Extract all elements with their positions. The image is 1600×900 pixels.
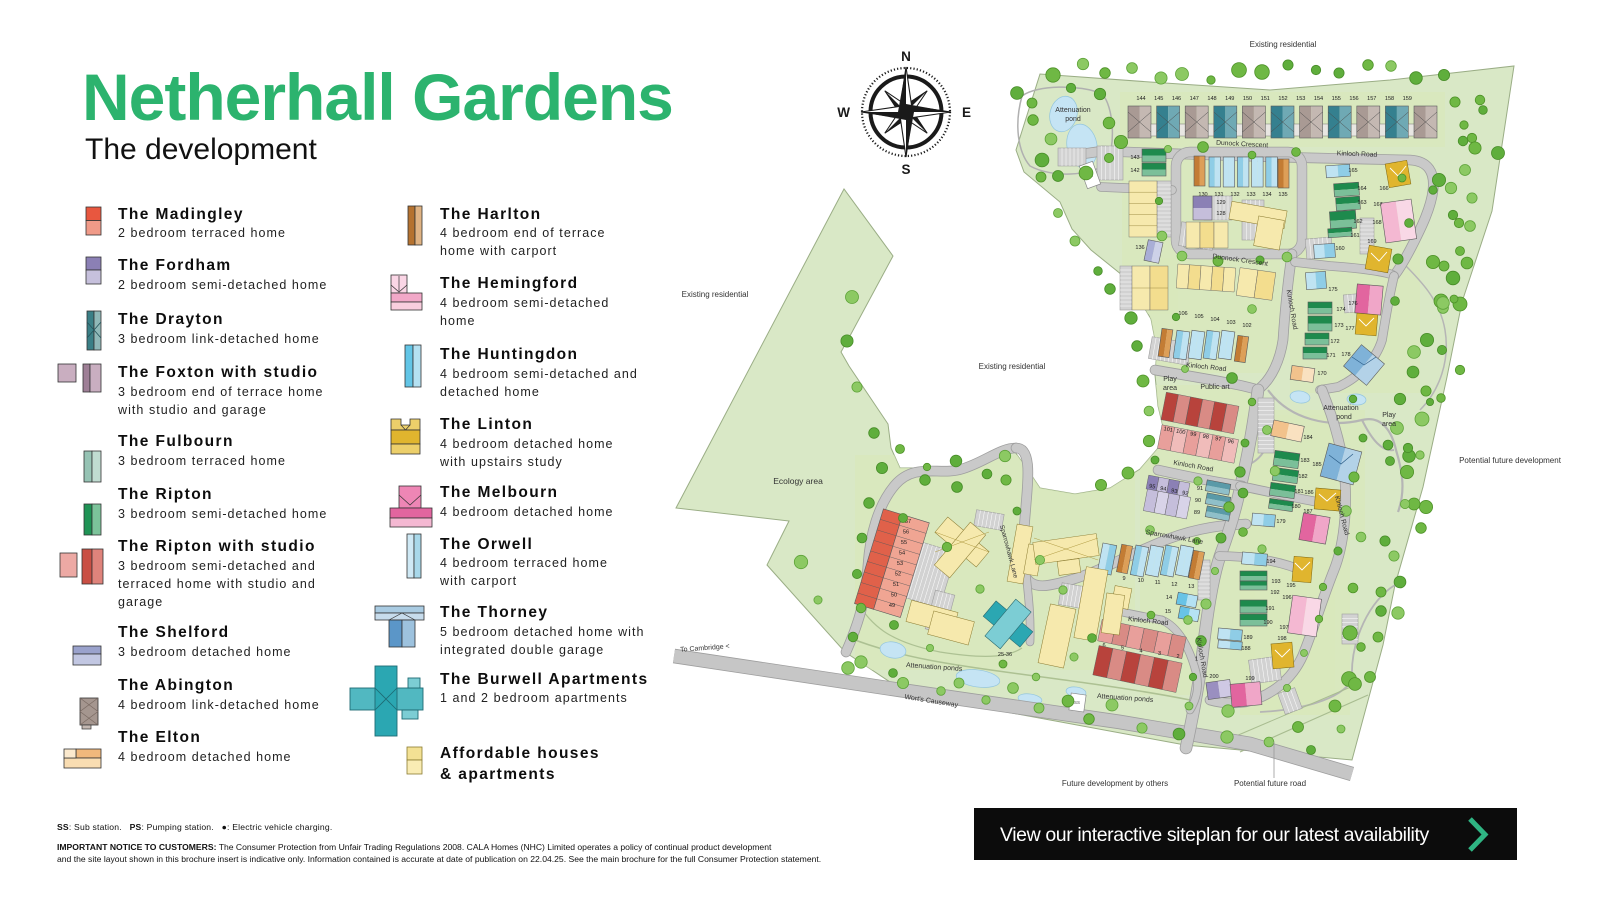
svg-text:152: 152 [1278,96,1287,102]
svg-text:92: 92 [1182,490,1189,497]
svg-text:188: 188 [1241,646,1250,652]
svg-text:131: 131 [1214,192,1223,198]
svg-text:192: 192 [1270,590,1279,596]
svg-text:3: 3 [1158,651,1161,657]
svg-text:175: 175 [1328,287,1337,293]
svg-text:169: 169 [1367,239,1376,245]
svg-text:196: 196 [1282,595,1291,601]
svg-text:143: 143 [1130,155,1139,161]
svg-text:area: area [1382,421,1396,428]
svg-text:182: 182 [1298,474,1307,480]
svg-text:184: 184 [1303,435,1312,441]
svg-text:171: 171 [1326,353,1335,359]
svg-text:176: 176 [1348,301,1357,307]
svg-text:199: 199 [1245,676,1254,682]
svg-text:pond: pond [1336,414,1352,421]
svg-text:150: 150 [1243,96,1252,102]
svg-text:136: 136 [1135,245,1144,251]
svg-text:area: area [1163,385,1177,392]
svg-text:180: 180 [1291,504,1300,510]
svg-text:50: 50 [891,593,897,599]
svg-text:96: 96 [1227,438,1234,445]
svg-text:Existing residential: Existing residential [979,362,1046,371]
svg-text:197: 197 [1279,625,1288,631]
svg-text:91: 91 [1197,486,1203,492]
svg-text:179: 179 [1276,519,1285,525]
svg-text:14: 14 [1166,595,1172,601]
svg-text:To Cambridge <: To Cambridge < [680,643,730,653]
svg-text:133: 133 [1246,192,1255,198]
svg-text:163: 163 [1357,200,1366,206]
svg-text:Potential future development: Potential future development [1459,456,1562,465]
svg-text:56: 56 [903,530,909,536]
svg-text:Existing residential: Existing residential [1250,40,1317,49]
svg-text:173: 173 [1334,323,1343,329]
svg-text:157: 157 [1367,96,1376,102]
svg-text:164: 164 [1357,186,1366,192]
svg-text:51: 51 [893,582,899,588]
svg-text:168: 168 [1372,220,1381,226]
svg-text:135: 135 [1278,192,1287,198]
svg-text:55: 55 [901,540,907,546]
svg-text:167: 167 [1373,202,1382,208]
svg-text:134: 134 [1262,192,1271,198]
svg-text:93: 93 [1171,488,1178,495]
svg-text:151: 151 [1261,96,1270,102]
svg-text:103: 103 [1226,320,1235,326]
svg-text:187: 187 [1303,509,1312,515]
svg-text:145: 145 [1154,96,1163,102]
svg-text:191: 191 [1265,606,1274,612]
svg-text:183: 183 [1300,458,1309,464]
svg-text:190: 190 [1263,620,1272,626]
svg-text:53: 53 [897,561,903,567]
svg-text:Ecology area: Ecology area [773,476,823,486]
svg-text:97: 97 [1215,436,1222,443]
svg-text:142: 142 [1130,168,1139,174]
svg-text:200: 200 [1209,674,1218,680]
svg-text:166: 166 [1379,186,1388,192]
svg-text:52: 52 [895,572,901,578]
svg-text:104: 104 [1210,317,1219,323]
svg-text:165: 165 [1348,168,1357,174]
svg-text:105: 105 [1194,314,1203,320]
svg-text:25-36: 25-36 [998,652,1012,658]
svg-text:132: 132 [1230,192,1239,198]
svg-text:156: 156 [1349,96,1358,102]
svg-text:177: 177 [1345,326,1354,332]
svg-text:W: W [837,105,850,120]
svg-text:147: 147 [1190,96,1199,102]
svg-text:49: 49 [889,603,895,609]
svg-text:172: 172 [1330,339,1339,345]
svg-text:174: 174 [1336,307,1345,313]
svg-text:SS: SS [1074,700,1080,705]
svg-text:13: 13 [1188,584,1194,590]
svg-text:178: 178 [1341,352,1350,358]
svg-text:Play: Play [1163,376,1177,383]
svg-text:Play: Play [1382,412,1396,419]
svg-text:15: 15 [1165,609,1171,615]
svg-text:148: 148 [1207,96,1216,102]
svg-text:95: 95 [1149,483,1156,490]
svg-text:90: 90 [1195,498,1201,504]
svg-text:194: 194 [1266,559,1275,565]
svg-text:153: 153 [1296,96,1305,102]
svg-text:162: 162 [1353,219,1362,225]
svg-text:181: 181 [1294,489,1303,495]
svg-text:2: 2 [1176,654,1179,660]
svg-text:198: 198 [1277,636,1286,642]
svg-text:189: 189 [1243,635,1252,641]
svg-text:99: 99 [1190,431,1197,438]
svg-text:186: 186 [1304,490,1313,496]
svg-text:9: 9 [1122,576,1125,582]
svg-text:149: 149 [1225,96,1234,102]
svg-text:158: 158 [1385,96,1394,102]
svg-text:54: 54 [899,551,905,557]
svg-text:pond: pond [1065,116,1081,123]
svg-text:11: 11 [1155,580,1161,586]
svg-text:146: 146 [1172,96,1181,102]
svg-text:10: 10 [1138,578,1144,584]
svg-text:161: 161 [1350,233,1359,239]
svg-text:E: E [962,105,971,120]
svg-text:102: 102 [1242,323,1251,329]
svg-text:98: 98 [1202,434,1209,441]
svg-text:160: 160 [1335,246,1344,252]
svg-text:Future development by others: Future development by others [1062,779,1168,788]
svg-text:89: 89 [1194,510,1200,516]
svg-text:154: 154 [1314,96,1323,102]
svg-text:170: 170 [1317,371,1326,377]
svg-text:159: 159 [1403,96,1412,102]
svg-text:193: 193 [1271,579,1280,585]
svg-text:185: 185 [1312,462,1321,468]
svg-text:144: 144 [1136,96,1145,102]
svg-text:Public art: Public art [1200,384,1229,391]
svg-text:128: 128 [1216,211,1225,217]
svg-text:129: 129 [1216,200,1225,206]
svg-text:S: S [901,162,910,177]
svg-text:1: 1 [1195,657,1198,663]
svg-text:12: 12 [1171,582,1177,588]
svg-text:4: 4 [1139,648,1142,654]
svg-text:Attenuation: Attenuation [1323,405,1359,412]
svg-text:155: 155 [1332,96,1341,102]
svg-text:Potential future road: Potential future road [1234,779,1306,788]
svg-text:Kinloch Road: Kinloch Road [1337,150,1378,158]
svg-text:Existing residential: Existing residential [682,290,749,299]
svg-text:94: 94 [1160,486,1167,493]
svg-text:Attenuation: Attenuation [1055,107,1091,114]
svg-text:195: 195 [1286,583,1295,589]
svg-text:N: N [901,49,911,64]
